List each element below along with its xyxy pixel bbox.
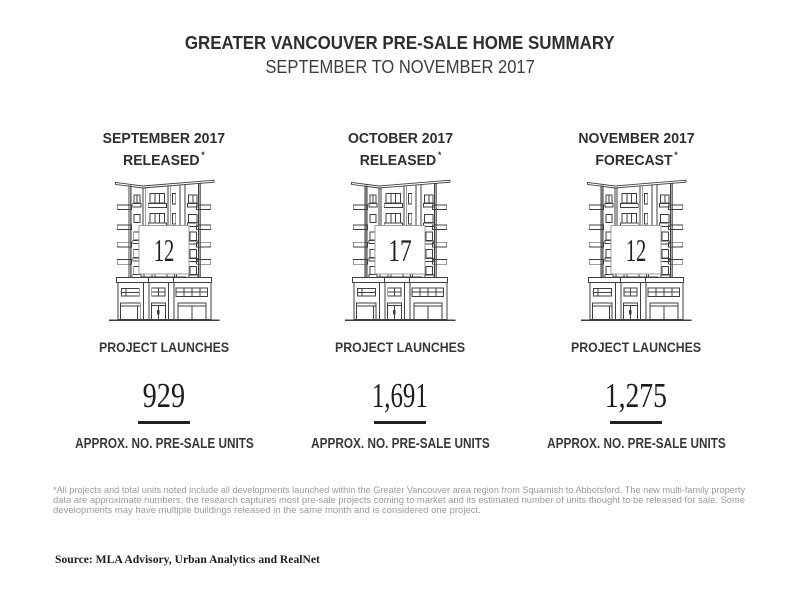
svg-text:12: 12 [626,233,647,268]
svg-text:12: 12 [154,233,175,268]
svg-text:17: 17 [388,233,411,268]
